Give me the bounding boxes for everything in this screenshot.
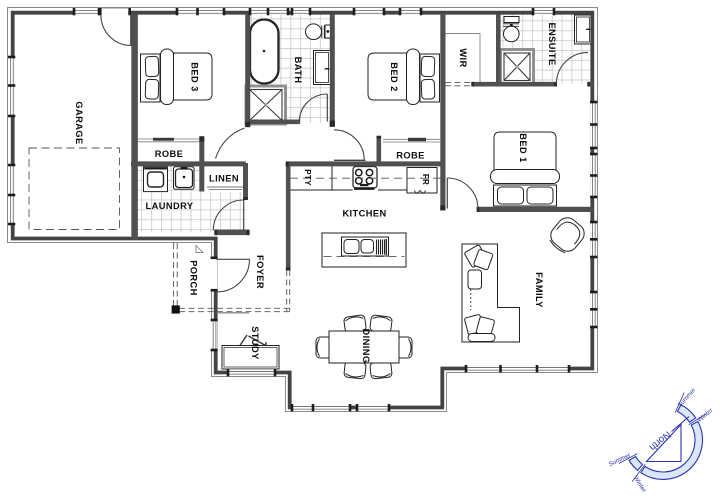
svg-text:ROBE: ROBE [396,151,424,161]
svg-text:PTY: PTY [303,169,312,186]
svg-text:FR: FR [421,174,430,185]
svg-text:BED 2: BED 2 [389,62,399,91]
svg-text:BED 3: BED 3 [190,62,200,91]
svg-text:BED 1: BED 1 [518,133,528,162]
svg-text:FOYER: FOYER [255,255,265,289]
svg-text:WIR: WIR [458,48,468,67]
svg-text:FAMILY: FAMILY [534,272,544,308]
svg-text:STUDY: STUDY [250,326,260,360]
svg-text:DINING: DINING [361,329,371,364]
svg-text:LAUNDRY: LAUNDRY [146,201,194,211]
svg-text:PORCH: PORCH [189,260,199,296]
svg-text:GARAGE: GARAGE [74,101,84,144]
svg-text:KITCHEN: KITCHEN [342,209,386,219]
svg-text:LINEN: LINEN [209,174,239,184]
svg-text:ROBE: ROBE [155,149,183,159]
svg-text:ENSUITE: ENSUITE [547,22,557,65]
svg-text:BATH: BATH [293,57,303,84]
